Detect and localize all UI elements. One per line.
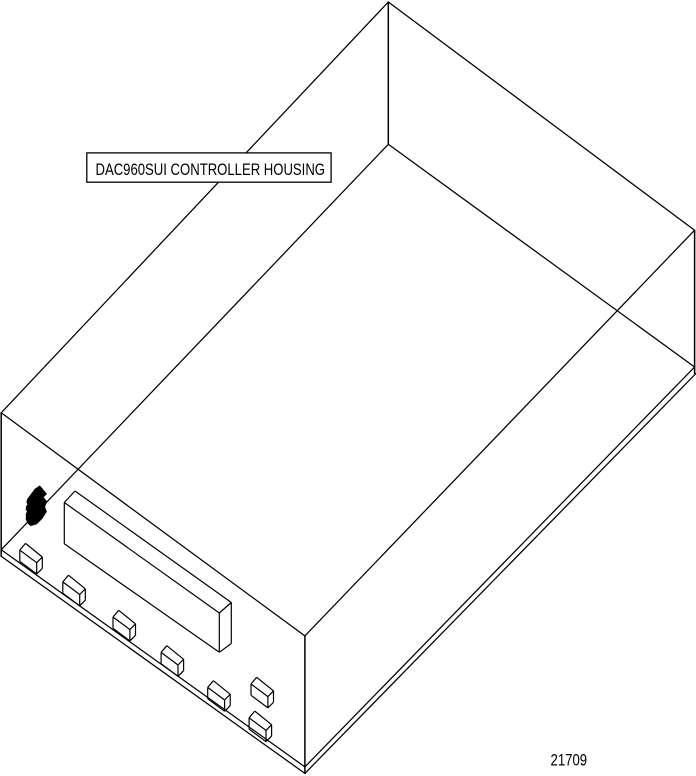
svg-text:DAC960SUI CONTROLLER HOUSING: DAC960SUI CONTROLLER HOUSING	[96, 161, 326, 179]
svg-text:21709: 21709	[551, 751, 588, 769]
